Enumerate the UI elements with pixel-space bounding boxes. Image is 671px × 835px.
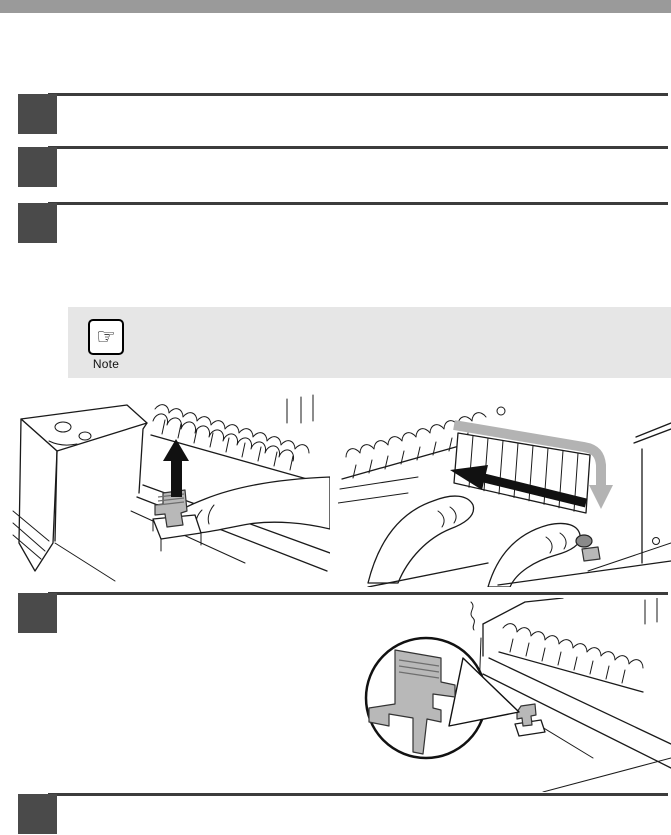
manual-page: ☞ Note xyxy=(0,0,671,835)
note-box: ☞ Note xyxy=(68,307,671,378)
step-rule xyxy=(48,592,668,595)
step-rule xyxy=(48,793,668,796)
step-rule xyxy=(48,146,668,149)
figure-remove-paper-guide xyxy=(338,393,671,587)
printer-line-art xyxy=(353,598,671,792)
step-marker-5 xyxy=(0,793,671,835)
step-number-square xyxy=(18,203,57,243)
printer-line-art xyxy=(338,393,671,587)
step-marker-2 xyxy=(0,146,671,190)
step-rule xyxy=(48,202,668,205)
step-number-square xyxy=(18,593,57,633)
note-icon-block: ☞ Note xyxy=(86,319,126,371)
step-number-square xyxy=(18,94,57,134)
printer-line-art xyxy=(5,393,330,583)
note-label: Note xyxy=(86,357,126,371)
step-rule xyxy=(48,93,668,96)
step-marker-1 xyxy=(0,93,671,137)
page-header-bar xyxy=(0,0,671,13)
step-marker-3 xyxy=(0,202,671,246)
step-number-square xyxy=(18,794,57,834)
figure-release-lever-detail xyxy=(353,598,671,792)
figure-push-release-lever-up xyxy=(5,393,330,583)
pointing-hand-icon: ☞ xyxy=(88,319,124,355)
step-number-square xyxy=(18,147,57,187)
